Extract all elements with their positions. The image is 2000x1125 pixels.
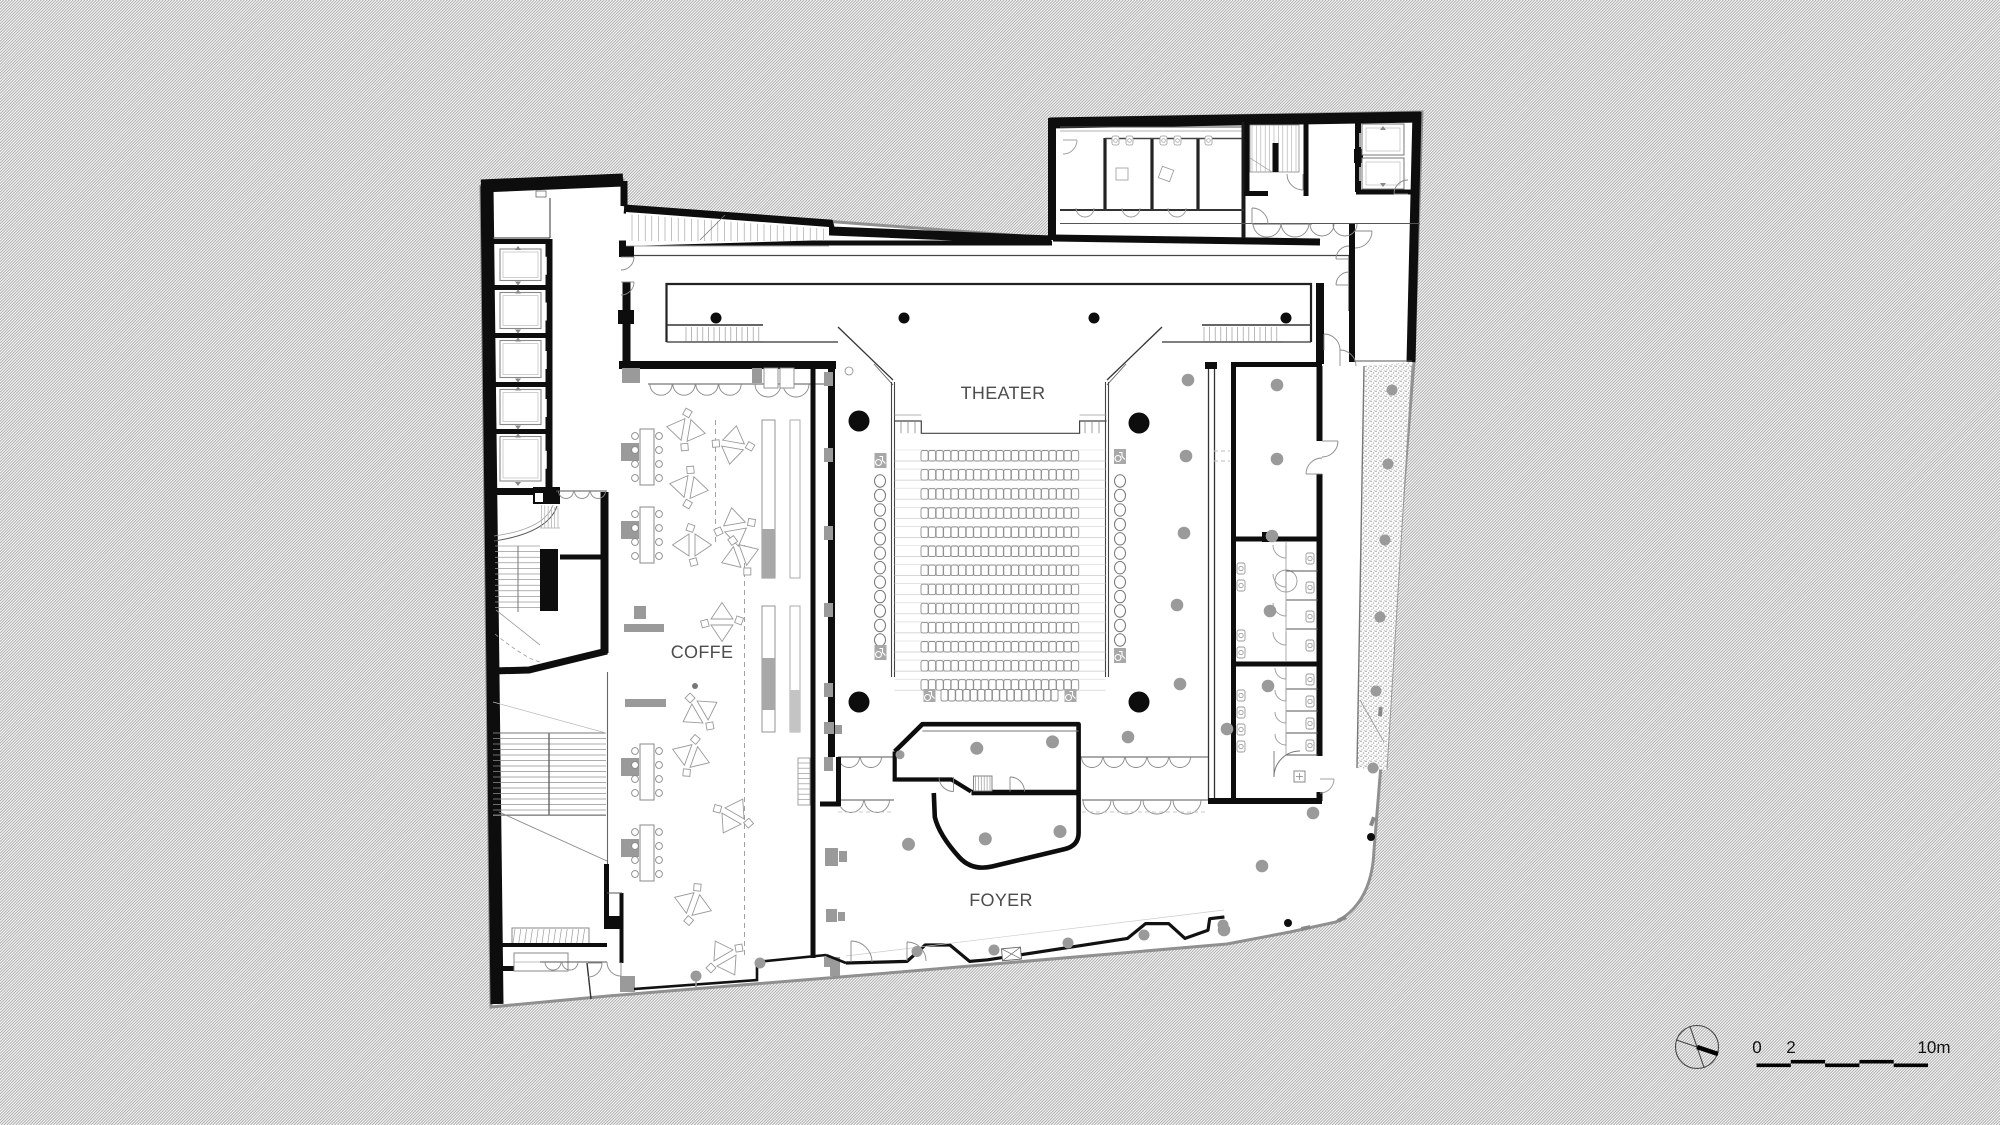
svg-text:FOYER: FOYER (969, 890, 1033, 910)
svg-text:10m: 10m (1917, 1038, 1950, 1057)
svg-text:0: 0 (1752, 1038, 1761, 1057)
svg-text:THEATER: THEATER (961, 383, 1046, 403)
svg-text:COFFE: COFFE (671, 642, 734, 662)
svg-text:2: 2 (1786, 1038, 1795, 1057)
